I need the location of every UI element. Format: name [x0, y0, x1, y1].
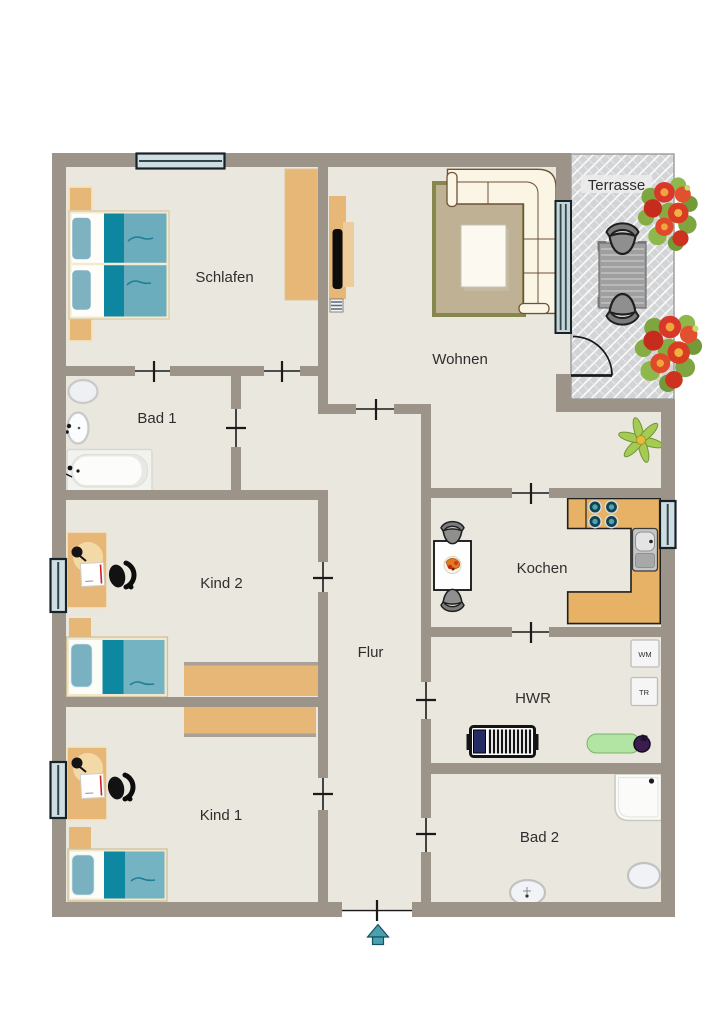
svg-text:Flur: Flur	[358, 644, 384, 661]
svg-text:Kind 2: Kind 2	[200, 575, 243, 592]
svg-text:Bad 1: Bad 1	[137, 410, 176, 427]
svg-text:Kochen: Kochen	[517, 560, 568, 577]
svg-text:Bad 2: Bad 2	[520, 829, 559, 846]
svg-text:Schlafen: Schlafen	[195, 269, 253, 286]
svg-text:Kind 1: Kind 1	[200, 807, 243, 824]
svg-text:HWR: HWR	[515, 690, 551, 707]
svg-text:Terrasse: Terrasse	[588, 177, 646, 194]
svg-text:WM: WM	[638, 650, 651, 659]
svg-text:TR: TR	[639, 688, 650, 697]
svg-text:Wohnen: Wohnen	[432, 351, 488, 368]
